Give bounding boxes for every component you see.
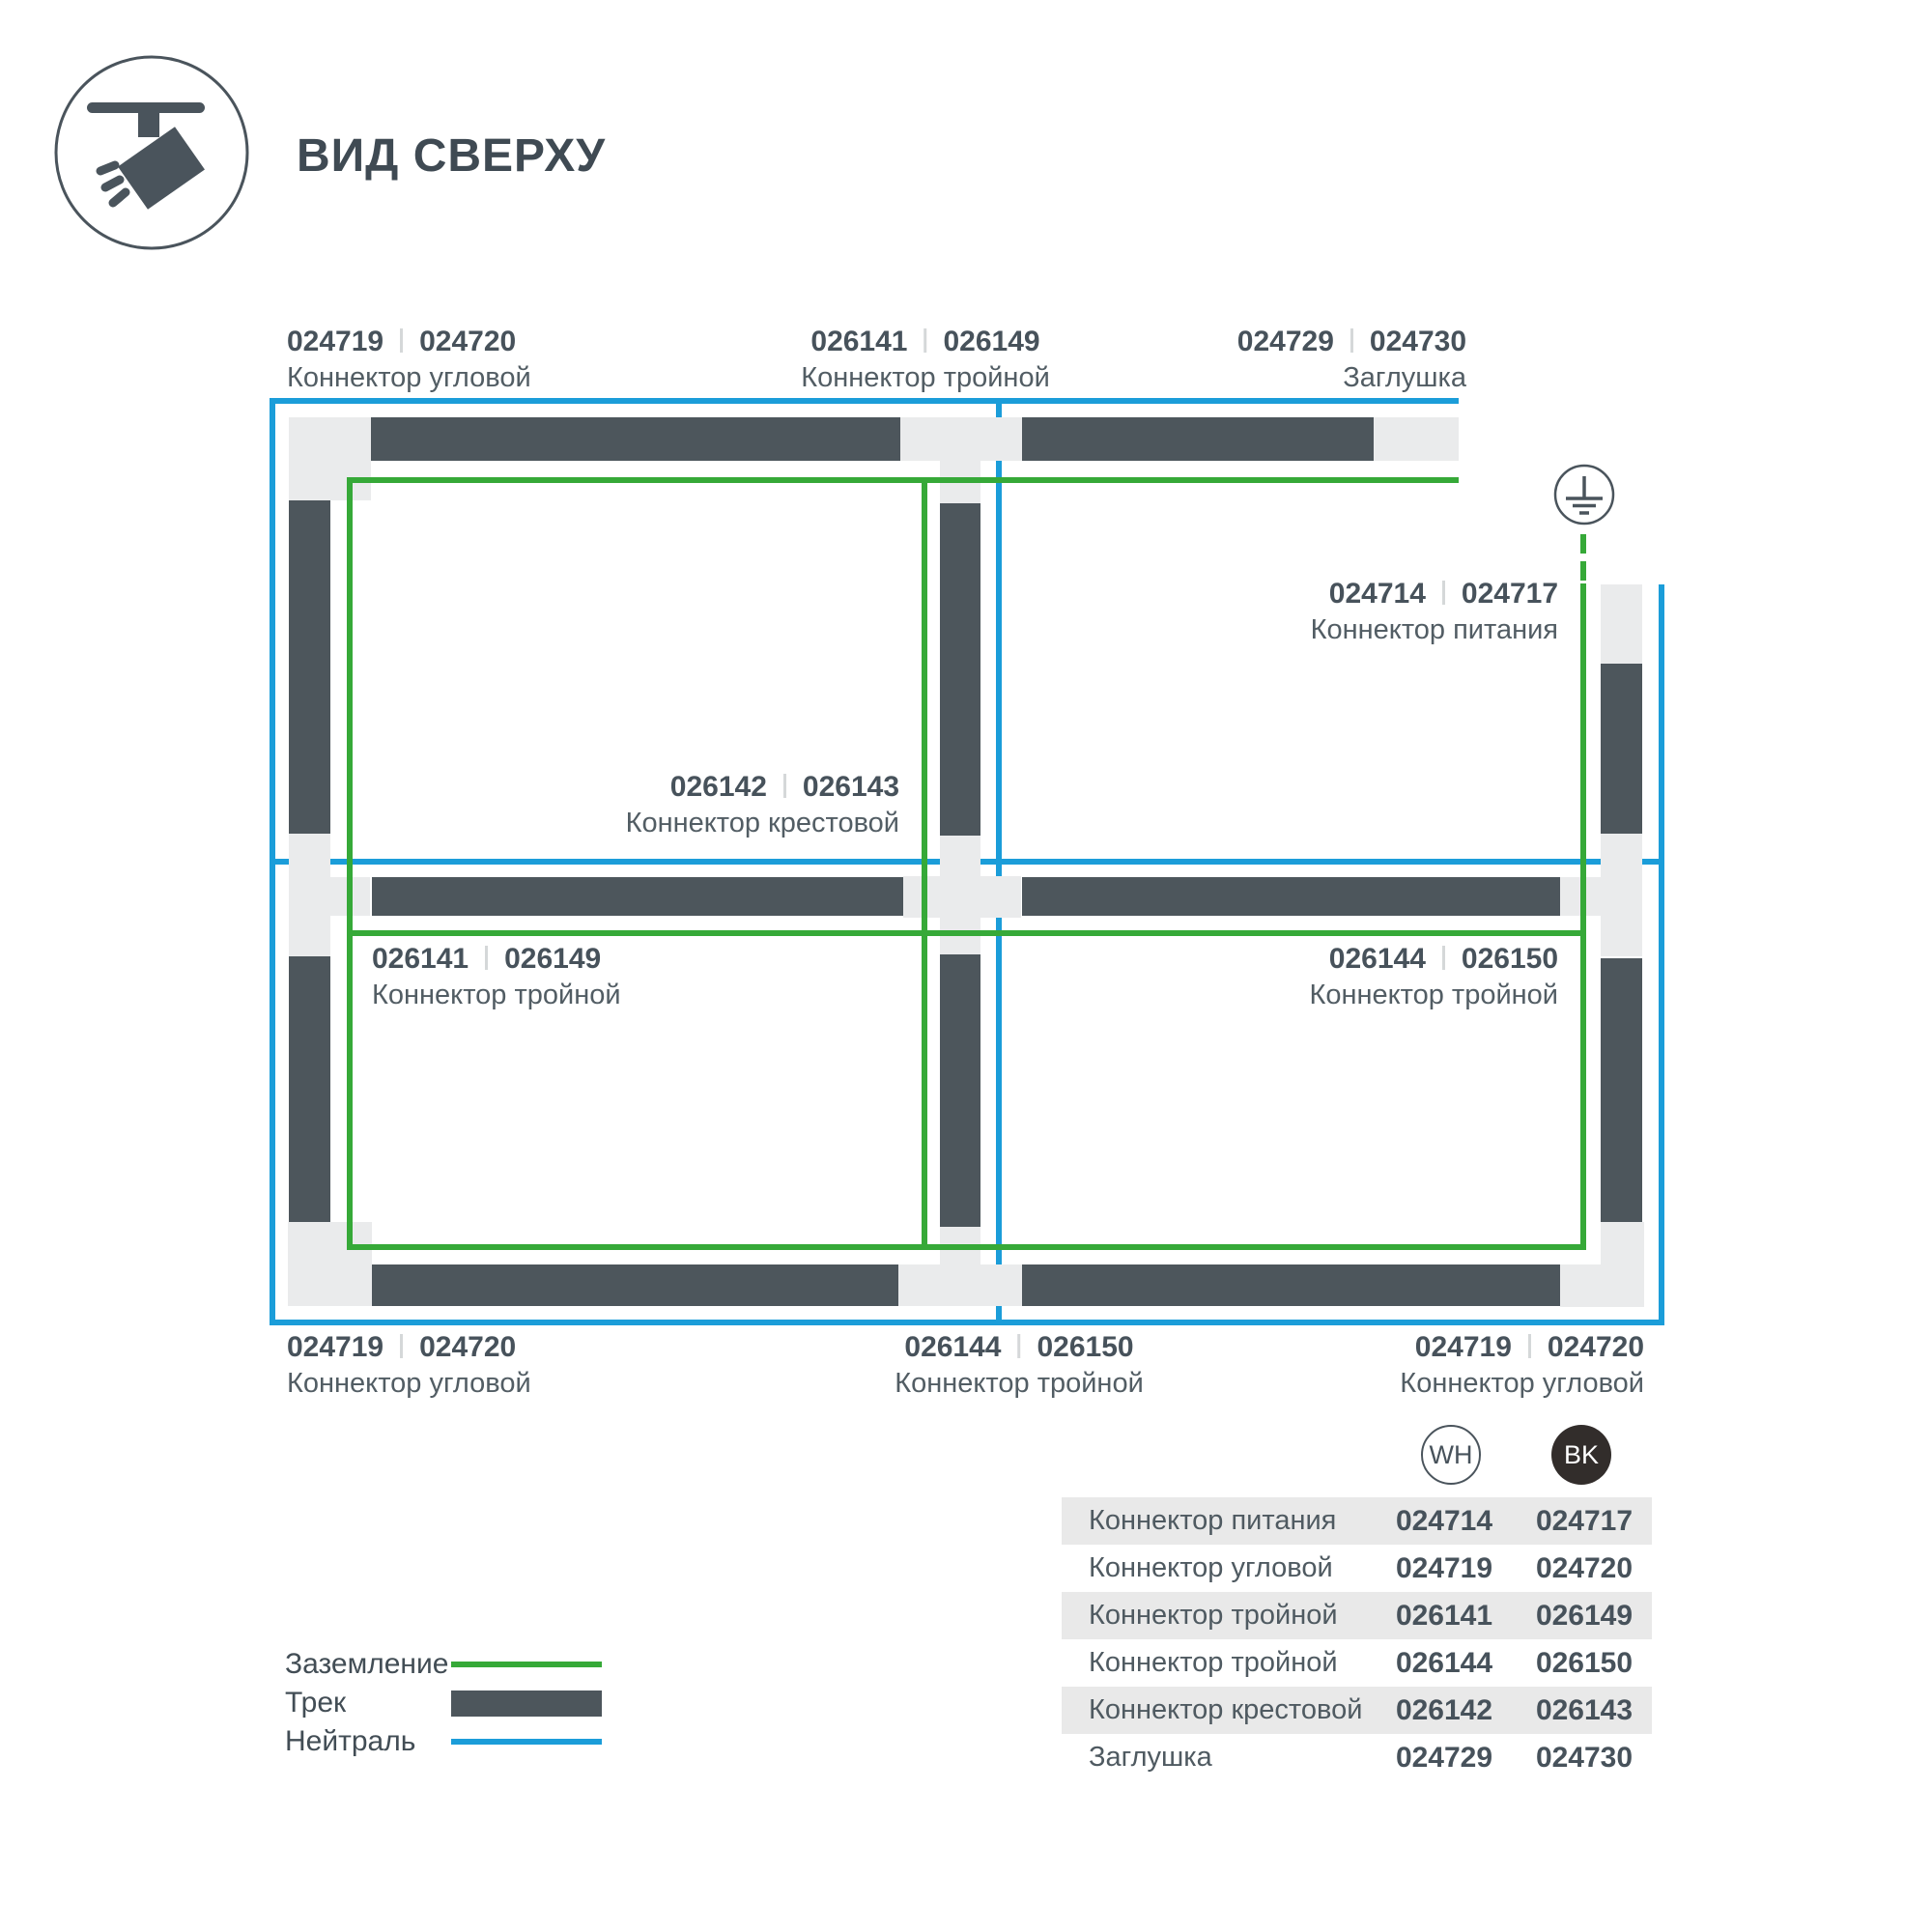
track-segment: [940, 954, 980, 1227]
code-divider: [1350, 328, 1353, 353]
code-divider: [1442, 946, 1445, 970]
page: ВИД СВЕРХУ: [0, 0, 1932, 1932]
neutral-line-bottom: [270, 1320, 1664, 1325]
corner-connector-bottom-left: [288, 1222, 372, 1306]
label-end-cap: 024729024730 Заглушка: [1237, 326, 1466, 394]
track-swatch: [451, 1690, 602, 1717]
table-row: Коннектор тройной 026141 026149: [1062, 1592, 1652, 1639]
black-variant-label: BK: [1564, 1440, 1599, 1470]
track-segment: [940, 503, 980, 836]
neutral-line-right: [1659, 584, 1664, 1325]
track-segment: [289, 500, 330, 834]
tri-connector-left: [289, 834, 330, 956]
corner-connector-bottom-right-arm: [1560, 1264, 1601, 1307]
label-tri-middle-right: 026144026150 Коннектор тройной: [1309, 943, 1558, 1011]
track-segment: [1022, 877, 1560, 916]
track-segment: [372, 877, 903, 916]
earth-ground-icon: [1553, 464, 1615, 526]
code-divider: [485, 946, 488, 970]
tri-connector-bottom: [898, 1264, 1022, 1306]
article-table: Коннектор питания 024714 024717 Коннекто…: [1062, 1497, 1652, 1781]
ground-line-swatch: [451, 1662, 602, 1667]
ground-dash: [1580, 561, 1586, 581]
neutral-line-top: [270, 398, 1459, 404]
code-divider: [1017, 1334, 1020, 1358]
table-row: Коннектор угловой 024719 024720: [1062, 1545, 1652, 1592]
tri-connector-top: [900, 417, 1022, 461]
label-corner-bottom-left: 024719024720 Коннектор угловой: [287, 1331, 531, 1400]
neutral-line-middle-v: [996, 398, 1002, 1325]
tri-connector-right: [1601, 834, 1642, 956]
label-corner-top-left: 024719024720 Коннектор угловой: [287, 326, 531, 394]
label-tri-middle-left: 026141026149 Коннектор тройной: [372, 943, 621, 1011]
ground-dash: [1580, 534, 1586, 554]
code-divider: [1528, 1334, 1531, 1358]
track-segment: [372, 1264, 898, 1306]
white-variant-label: WH: [1430, 1440, 1473, 1470]
track-segment: [1022, 417, 1374, 461]
track-segment: [1022, 1264, 1560, 1306]
legend-item-neutral: Нейтраль: [285, 1722, 604, 1761]
end-cap-connector: [1374, 417, 1459, 461]
code-divider: [783, 774, 786, 798]
code-divider: [400, 328, 403, 353]
code-divider: [923, 328, 926, 353]
page-title: ВИД СВЕРХУ: [297, 129, 606, 183]
track-segment: [1601, 664, 1642, 834]
track-segment: [1601, 958, 1642, 1222]
corner-connector-top-left: [289, 417, 371, 500]
table-row: Заглушка 024729 024730: [1062, 1734, 1652, 1781]
neutral-line-swatch: [451, 1739, 602, 1745]
ground-line-vertical-1: [347, 477, 353, 1250]
black-variant-badge: BK: [1551, 1425, 1611, 1485]
ground-line-middle: [347, 930, 1586, 936]
cross-connector-stem-top: [940, 836, 980, 876]
legend-item-ground: Заземление: [285, 1645, 604, 1684]
label-cross-connector: 026142026143 Коннектор крестовой: [626, 771, 899, 839]
label-tri-top: 026141026149 Коннектор тройной: [801, 326, 1050, 394]
track-segment: [371, 417, 900, 461]
label-power-connector: 024714024717 Коннектор питания: [1311, 578, 1558, 646]
ground-line-top: [347, 477, 1459, 483]
ground-line-vertical-3: [1580, 583, 1586, 1250]
label-corner-bottom-right: 024719024720 Коннектор угловой: [1400, 1331, 1644, 1400]
ground-line-vertical-2: [922, 477, 927, 1250]
label-tri-bottom: 026144026150 Коннектор тройной: [895, 1331, 1144, 1400]
legend: Заземление Трек Нейтраль: [285, 1645, 604, 1761]
ground-line-bottom: [347, 1244, 1586, 1250]
legend-item-track: Трек: [285, 1684, 604, 1722]
track-segment: [289, 956, 330, 1222]
table-row: Коннектор питания 024714 024717: [1062, 1497, 1652, 1545]
table-row: Коннектор тройной 026144 026150: [1062, 1639, 1652, 1687]
table-row: Коннектор крестовой 026142 026143: [1062, 1687, 1652, 1734]
power-connector: [1601, 584, 1642, 664]
white-variant-badge: WH: [1421, 1425, 1481, 1485]
code-divider: [400, 1334, 403, 1358]
corner-connector-bottom-right: [1601, 1222, 1644, 1307]
cross-connector-stem-bottom: [940, 918, 980, 954]
code-divider: [1442, 581, 1445, 605]
track-spotlight-icon: [53, 54, 250, 251]
